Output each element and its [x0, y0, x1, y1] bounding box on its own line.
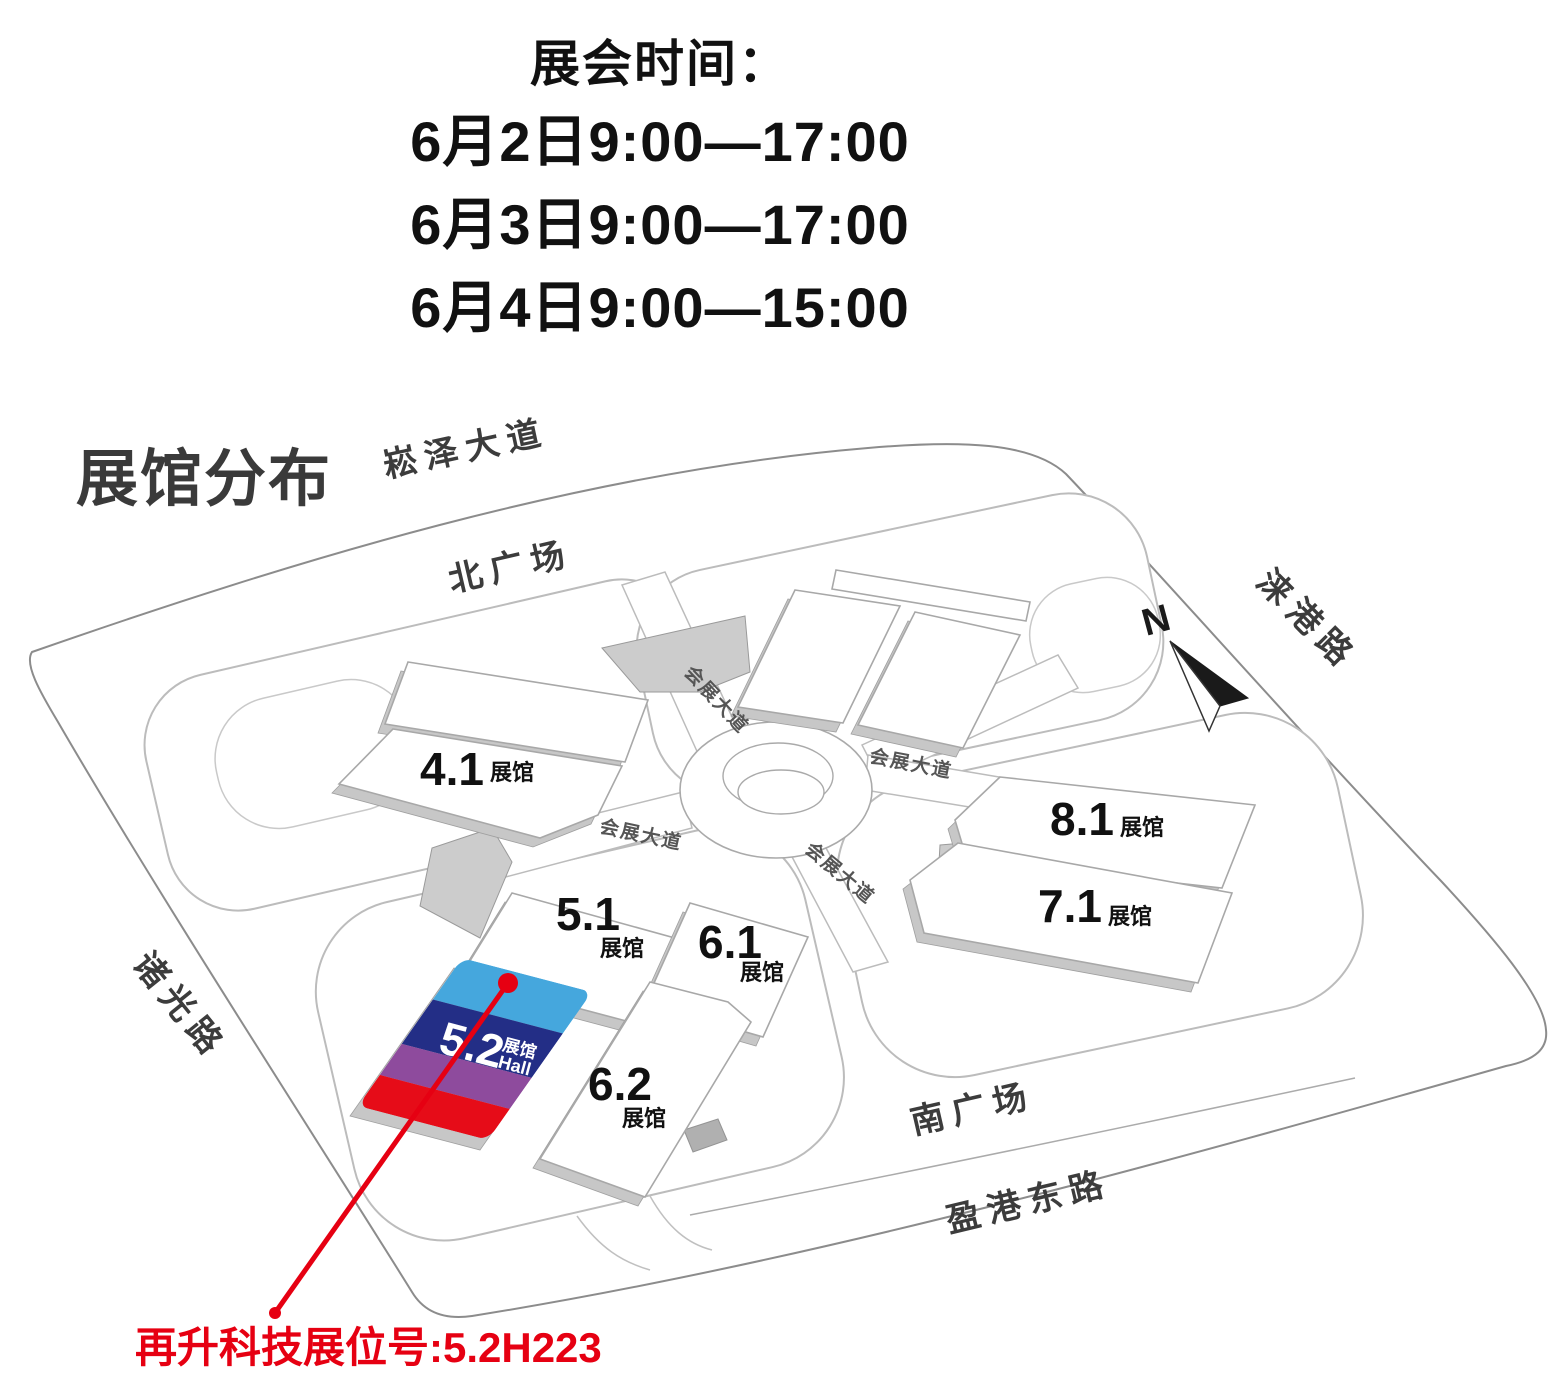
annotation-text: 再升科技展位号:5.2H223 [135, 1324, 602, 1371]
hall-4-1-number: 4.1 [420, 743, 484, 795]
annotation-dot-end [269, 1307, 281, 1319]
hall-5-1-suffix: 展馆 [600, 936, 644, 961]
hall-7-1-number: 7.1 [1038, 880, 1102, 932]
hall-8-1-number: 8.1 [1050, 793, 1114, 845]
hall-5-1-number: 5.1 [556, 888, 620, 940]
schedule-day-1: 6月2日9:00—17:00 [410, 100, 910, 183]
road-label-laigang-road: 涞港路 [1249, 562, 1365, 678]
hall-6-2-number: 6.2 [588, 1058, 652, 1110]
map-title: 展馆分布 [76, 445, 332, 514]
schedule-block: 展会时间： 6月2日9:00—17:00 6月3日9:00—17:00 6月4日… [410, 28, 910, 349]
road-label-songze-avenue: 崧泽大道 [380, 413, 552, 485]
hall-6-2-suffix: 展馆 [622, 1106, 666, 1131]
hall-6-1-suffix: 展馆 [740, 960, 784, 985]
schedule-title: 展会时间： [410, 28, 910, 100]
exhibition-flyer: 展会时间： 6月2日9:00—17:00 6月3日9:00—17:00 6月4日… [0, 0, 1563, 1397]
roundabout-hole [738, 770, 824, 814]
hall-4-1-suffix: 展馆 [490, 760, 534, 785]
annotation-dot-hall [498, 973, 518, 993]
schedule-day-2: 6月3日9:00—17:00 [410, 183, 910, 266]
hall-7-1-suffix: 展馆 [1108, 904, 1152, 929]
schedule-day-3: 6月4日9:00—15:00 [410, 266, 910, 349]
hall-8-1-suffix: 展馆 [1120, 815, 1164, 840]
venue-map: 5.2 展馆 Hall 4.1 展馆 5.1 展馆 6.1 展馆 6.2 展馆 … [0, 400, 1563, 1397]
